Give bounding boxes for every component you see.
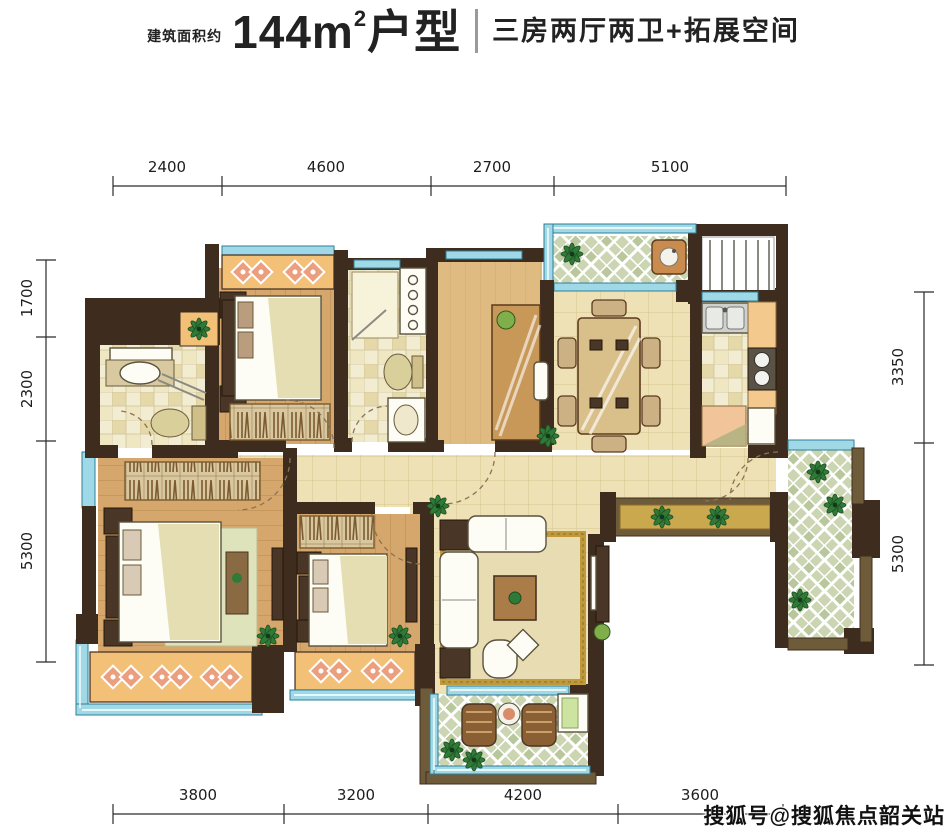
dining-chair <box>592 300 626 316</box>
kitchen-window <box>702 292 758 301</box>
desk-chair <box>534 362 548 400</box>
dining-chair <box>642 338 660 368</box>
bathroom-sink <box>120 362 160 384</box>
dining-chair <box>592 436 626 452</box>
sofa-top <box>468 516 546 552</box>
study-window <box>446 251 522 259</box>
dining-chair <box>558 396 576 426</box>
headboard <box>299 576 309 620</box>
dim-right-2: 5300 <box>889 535 907 573</box>
dim-left-1: 1700 <box>18 279 36 317</box>
dim-top-4: 5100 <box>651 158 689 176</box>
lounge-chair <box>462 704 496 746</box>
floor-plant <box>594 624 610 640</box>
planter <box>600 492 788 542</box>
dim-bottom-2: 3200 <box>337 786 375 804</box>
toilet-bowl <box>384 354 412 390</box>
tv-cabinet <box>596 546 609 622</box>
dim-top-3: 2700 <box>473 158 511 176</box>
dim-top-2: 4600 <box>307 158 345 176</box>
dim-bottom-3: 4200 <box>504 786 542 804</box>
side-table <box>440 520 470 550</box>
floor-plan-canvas: 2400 4600 2700 5100 3800 3200 4200 3600 … <box>0 0 947 834</box>
bedroom-north <box>220 292 334 448</box>
dining-chair <box>558 338 576 368</box>
watermark: 搜狐号@搜狐焦点韶关站 <box>704 800 945 830</box>
toilet-tank <box>412 356 423 388</box>
right-balcony-window <box>788 440 854 450</box>
floorplan-page: 建筑面积约 144m2户型 三房两厅两卫+拓展空间 <box>0 0 947 834</box>
tv-cabinet <box>272 548 283 620</box>
bed-blanket <box>340 556 387 644</box>
dim-right-1: 3350 <box>889 348 907 386</box>
dim-top-1: 2400 <box>148 158 186 176</box>
equipment-platform-floor <box>702 237 774 293</box>
headboard <box>222 300 235 396</box>
kitchen-door-leaf <box>748 408 775 444</box>
headboard <box>106 536 119 618</box>
dining-window <box>554 283 676 291</box>
sink <box>394 405 418 435</box>
bay-window-north-glass <box>222 246 334 255</box>
dim-bottom-1: 3800 <box>179 786 217 804</box>
toilet-bowl <box>151 409 189 437</box>
wardrobe <box>125 462 260 500</box>
bay-master-glass-left <box>76 640 88 710</box>
master-left-window <box>82 452 95 508</box>
toilet-tank <box>192 406 206 440</box>
dim-left-2: 2300 <box>18 370 36 408</box>
bathroom2-window <box>354 260 400 268</box>
lounge-chair <box>522 704 556 746</box>
desk-plant <box>497 311 515 329</box>
dining-chair <box>642 396 660 426</box>
wardrobe <box>300 516 374 548</box>
side-table <box>440 648 470 678</box>
dim-left-3: 5300 <box>18 532 36 570</box>
tv <box>591 556 596 610</box>
shower <box>352 272 398 338</box>
wardrobe <box>230 404 330 440</box>
tv-cabinet <box>406 548 417 622</box>
